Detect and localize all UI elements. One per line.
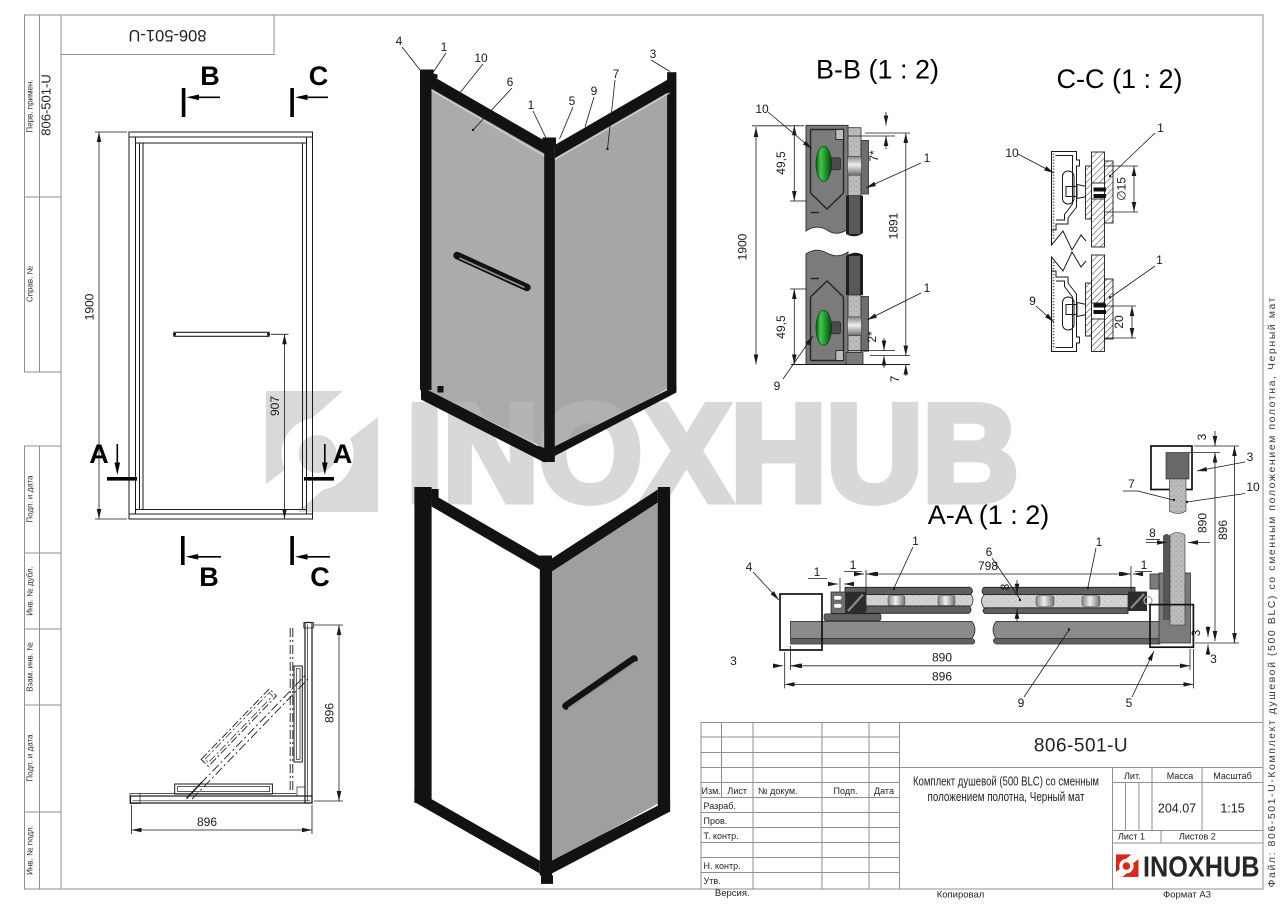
svg-text:Пров.: Пров.: [704, 816, 728, 826]
svg-text:1:15: 1:15: [1220, 802, 1244, 816]
svg-text:Дата: Дата: [874, 786, 894, 796]
svg-text:INOXHUB: INOXHUB: [406, 376, 1018, 531]
svg-text:1: 1: [814, 565, 821, 579]
svg-text:A: A: [89, 439, 109, 469]
svg-text:Комплект душевой (500 BLC) со: Комплект душевой (500 BLC) со сменным: [913, 774, 1099, 789]
svg-text:Подп. и дата: Подп. и дата: [26, 475, 35, 523]
svg-text:7*: 7*: [867, 150, 881, 162]
svg-text:9: 9: [774, 379, 781, 393]
svg-text:Лит.: Лит.: [1124, 771, 1141, 781]
svg-text:1900: 1900: [83, 293, 97, 320]
svg-text:798: 798: [978, 559, 998, 573]
svg-text:A: A: [333, 439, 353, 469]
svg-text:8: 8: [998, 583, 1012, 590]
svg-text:10: 10: [1246, 480, 1260, 494]
svg-text:1: 1: [924, 281, 931, 295]
svg-text:7: 7: [613, 67, 620, 81]
svg-text:B: B: [200, 61, 220, 91]
svg-text:1: 1: [1141, 558, 1148, 572]
svg-text:49,5: 49,5: [774, 315, 788, 339]
svg-text:10: 10: [1005, 146, 1019, 160]
svg-text:806-501-U: 806-501-U: [1034, 736, 1128, 757]
svg-text:B-B (1 : 2): B-B (1 : 2): [816, 55, 939, 85]
svg-text:4: 4: [746, 560, 753, 574]
svg-text:Н. контр.: Н. контр.: [704, 861, 741, 871]
svg-text:Листов 2: Листов 2: [1179, 832, 1216, 842]
svg-text:C-C (1 : 2): C-C (1 : 2): [1056, 64, 1182, 94]
svg-text:№ докум.: № докум.: [758, 786, 798, 796]
svg-text:1: 1: [1156, 253, 1163, 267]
svg-text:Перв. примен.: Перв. примен.: [26, 79, 35, 132]
svg-text:1900: 1900: [736, 233, 750, 260]
svg-text:1: 1: [924, 151, 931, 165]
svg-text:1: 1: [528, 98, 535, 112]
svg-text:907: 907: [268, 396, 282, 416]
svg-text:896: 896: [1216, 520, 1230, 540]
svg-text:B: B: [199, 562, 219, 592]
svg-text:1: 1: [441, 40, 448, 54]
svg-text:Инв. № дубл.: Инв. № дубл.: [26, 566, 35, 616]
svg-text:Копировал: Копировал: [937, 890, 985, 901]
svg-text:8: 8: [1149, 526, 1156, 540]
svg-text:6: 6: [507, 75, 514, 89]
svg-text:Подп.: Подп.: [834, 786, 858, 796]
svg-text:Справ. №: Справ. №: [26, 265, 35, 302]
svg-text:9: 9: [1029, 294, 1036, 308]
svg-text:7: 7: [888, 375, 902, 382]
svg-text:1: 1: [850, 558, 857, 572]
svg-text:Т. контр.: Т. контр.: [704, 831, 739, 841]
svg-text:2*: 2*: [865, 331, 879, 343]
svg-text:A-A (1 : 2): A-A (1 : 2): [928, 500, 1050, 530]
svg-text:Формат А3: Формат А3: [1163, 890, 1211, 901]
svg-text:890: 890: [932, 651, 952, 665]
svg-text:Масштаб: Масштаб: [1213, 771, 1252, 781]
svg-text:Файл: 806-501-U-Комплект душев: Файл: 806-501-U-Комплект душевой (500 BL…: [1266, 297, 1278, 887]
svg-text:Подп. и дата: Подп. и дата: [26, 734, 35, 782]
svg-text:49,5: 49,5: [774, 151, 788, 175]
svg-text:1: 1: [912, 534, 919, 548]
svg-text:890: 890: [1196, 513, 1210, 533]
svg-text:3: 3: [650, 47, 657, 61]
svg-text:1: 1: [1096, 535, 1103, 549]
svg-text:5: 5: [1126, 696, 1133, 710]
svg-text:3: 3: [1189, 629, 1203, 636]
svg-text:806-501-U: 806-501-U: [129, 26, 207, 44]
svg-text:Разраб.: Разраб.: [704, 801, 736, 811]
svg-text:204.07: 204.07: [1158, 802, 1196, 816]
svg-text:3: 3: [1247, 450, 1254, 464]
svg-text:806-501-U: 806-501-U: [39, 74, 54, 135]
svg-text:Лист: Лист: [727, 786, 747, 796]
svg-text:положением полотна, Черный мат: положением полотна, Черный мат: [928, 789, 1085, 804]
svg-text:Утв.: Утв.: [704, 876, 721, 886]
svg-text:Изм.: Изм.: [702, 786, 721, 796]
svg-text:10: 10: [755, 102, 769, 116]
svg-text:3: 3: [730, 654, 737, 668]
svg-text:Взам. инв. №: Взам. инв. №: [26, 642, 35, 692]
svg-text:3: 3: [1210, 652, 1217, 666]
svg-text:4: 4: [396, 34, 403, 48]
svg-text:20: 20: [1112, 315, 1126, 329]
svg-text:C: C: [309, 61, 329, 91]
svg-text:Масса: Масса: [1167, 771, 1194, 781]
svg-text:1: 1: [1157, 121, 1164, 135]
svg-text:Версия.: Версия.: [715, 888, 750, 899]
svg-text:INOXHUB: INOXHUB: [1143, 852, 1260, 884]
svg-text:896: 896: [323, 703, 337, 723]
svg-text:C: C: [310, 562, 330, 592]
svg-text:1891: 1891: [887, 212, 901, 239]
svg-text:∅15: ∅15: [1115, 177, 1129, 201]
svg-text:896: 896: [197, 815, 217, 829]
svg-text:5: 5: [569, 94, 576, 108]
svg-text:9: 9: [591, 84, 598, 98]
svg-text:Лист 1: Лист 1: [1118, 832, 1145, 842]
svg-text:Инв. № подл.: Инв. № подл.: [26, 825, 35, 875]
svg-text:9: 9: [1018, 696, 1025, 710]
svg-text:10: 10: [474, 51, 488, 65]
svg-text:3: 3: [1195, 433, 1209, 440]
svg-text:6: 6: [986, 545, 993, 559]
svg-text:7: 7: [1128, 477, 1135, 491]
svg-text:896: 896: [932, 670, 952, 684]
